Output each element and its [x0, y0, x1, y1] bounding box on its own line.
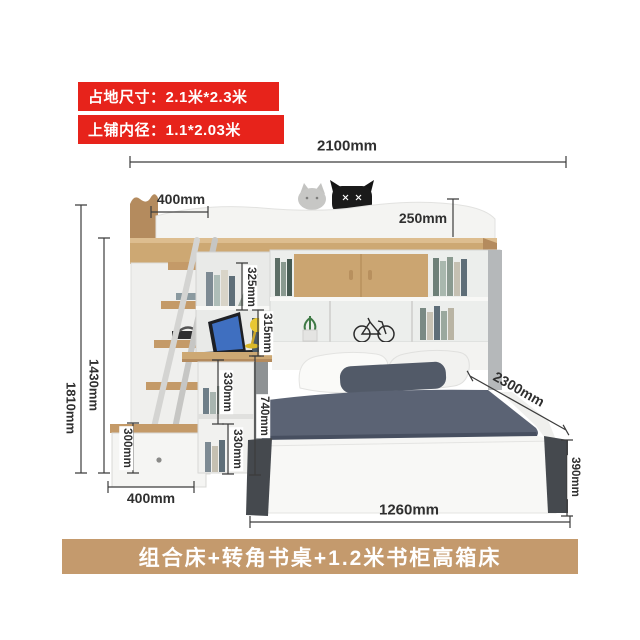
dim-label-cube-lower-height: 330mm: [229, 427, 243, 471]
cube-shelf: [198, 414, 254, 419]
books-icon: [433, 257, 467, 296]
dim-label-storage-box-height: 390mm: [567, 455, 581, 499]
dim-label-ladder-depth-top: 400mm: [157, 191, 205, 207]
plush-toy-gray-icon: [298, 183, 326, 210]
floor-size-badge: 占地尺寸：2.1米*2.3米: [78, 82, 279, 111]
bed-post-left: [246, 438, 272, 516]
dim-line-total-width: [130, 156, 566, 168]
blanket: [261, 390, 538, 440]
dim-label-shelf-top-height: 325mm: [243, 265, 257, 309]
books-icon: [420, 306, 454, 340]
dim-label-drawer-height: 300mm: [119, 426, 133, 470]
dim-label-total-width: 2100mm: [317, 138, 377, 155]
left-headboard: [130, 194, 158, 240]
dim-label-desk-height: 740mm: [256, 394, 270, 438]
bookcase-shelf: [270, 297, 500, 301]
dim-label-guard-rail-height: 250mm: [399, 210, 447, 226]
drawer-knob-icon: [156, 457, 161, 462]
pillow-dark: [339, 361, 446, 394]
upper-inner-size-badge: 上铺内径：1.1*2.03米: [78, 115, 284, 144]
sliding-doors: [294, 254, 428, 297]
dim-label-total-height: 1810mm: [64, 382, 79, 434]
dim-label-shelf-mid-height: 315mm: [259, 311, 273, 355]
dim-label-ladder-width-bottom: 400mm: [127, 490, 175, 506]
bed-post-right: [544, 436, 568, 513]
books-icon: [275, 258, 292, 296]
dim-line-under-bunk-height: [98, 238, 110, 473]
dim-label-cube-upper-height: 330mm: [219, 370, 233, 414]
product-title-banner: 组合床+转角书桌+1.2米书柜高箱床: [62, 539, 578, 574]
lower-bed: [246, 350, 568, 516]
dim-label-bed-front-width: 1260mm: [379, 502, 439, 519]
dim-label-under-bunk-height: 1430mm: [87, 359, 102, 411]
bunk-rail-highlight: [130, 238, 497, 243]
